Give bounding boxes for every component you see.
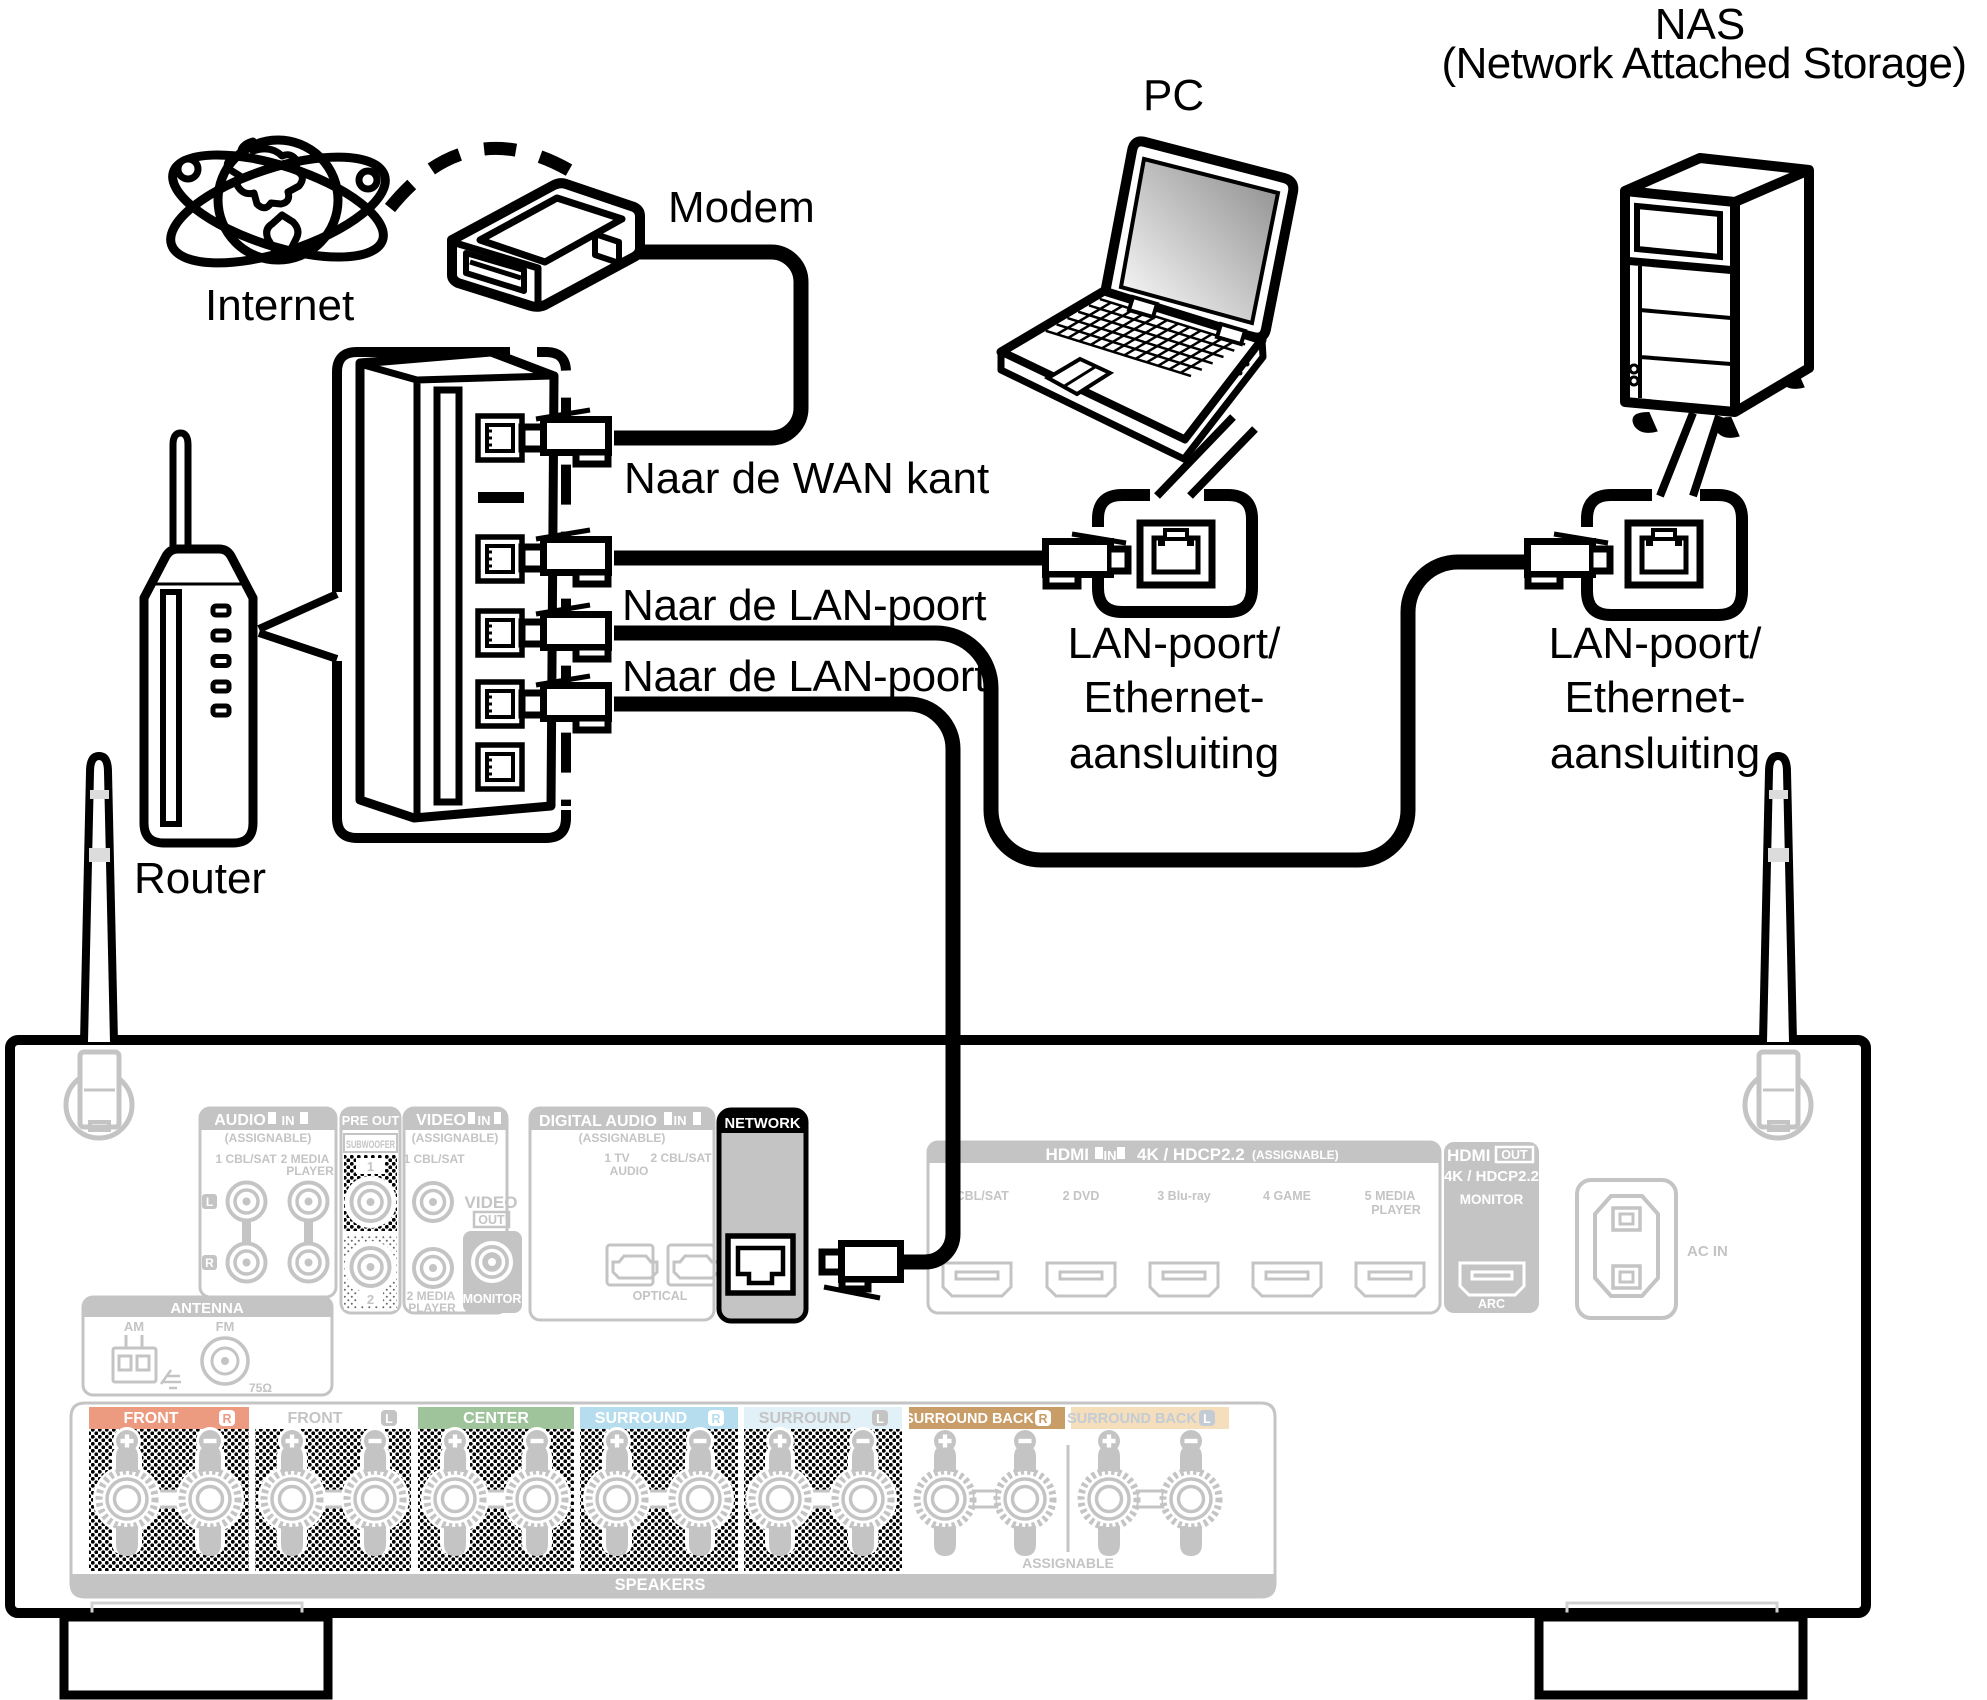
- svg-text:VIDEO: VIDEO: [416, 1112, 466, 1129]
- svg-text:SUBWOOFER: SUBWOOFER: [346, 1139, 395, 1151]
- svg-text:R: R: [205, 1256, 214, 1270]
- svg-text:(ASSIGNABLE): (ASSIGNABLE): [412, 1131, 499, 1145]
- svg-text:Naar de LAN-poort: Naar de LAN-poort: [622, 652, 986, 701]
- svg-text:DIGITAL AUDIO: DIGITAL AUDIO: [539, 1113, 657, 1130]
- svg-text:PC: PC: [1143, 71, 1204, 120]
- svg-text:Ethernet-: Ethernet-: [1084, 673, 1265, 722]
- svg-text:1 CBL/SAT: 1 CBL/SAT: [215, 1152, 277, 1166]
- svg-text:L: L: [1203, 1412, 1211, 1426]
- svg-text:ANTENNA: ANTENNA: [170, 1300, 243, 1317]
- svg-text:4 GAME: 4 GAME: [1263, 1189, 1311, 1203]
- svg-text:R: R: [1038, 1412, 1047, 1426]
- svg-text:3 Blu-ray: 3 Blu-ray: [1157, 1189, 1211, 1203]
- svg-text:PRE OUT: PRE OUT: [342, 1113, 400, 1128]
- svg-text:1 TV: 1 TV: [604, 1151, 629, 1165]
- svg-text:Modem: Modem: [668, 183, 815, 232]
- svg-text:aansluiting: aansluiting: [1550, 729, 1760, 778]
- svg-text:5 MEDIA: 5 MEDIA: [1365, 1189, 1416, 1203]
- svg-text:OUT: OUT: [478, 1213, 505, 1227]
- svg-text:OPTICAL: OPTICAL: [633, 1289, 688, 1303]
- svg-text:IN: IN: [1104, 1148, 1117, 1163]
- svg-text:Internet: Internet: [205, 281, 354, 330]
- svg-text:PLAYER: PLAYER: [1371, 1203, 1421, 1217]
- svg-text:L: L: [876, 1412, 884, 1426]
- svg-text:SURROUND BACK: SURROUND BACK: [904, 1411, 1034, 1427]
- svg-text:4K / HDCP2.2: 4K / HDCP2.2: [1137, 1145, 1245, 1164]
- svg-text:aansluiting: aansluiting: [1069, 729, 1279, 778]
- svg-text:PLAYER: PLAYER: [286, 1164, 334, 1178]
- svg-text:SURROUND: SURROUND: [759, 1410, 851, 1427]
- svg-text:SURROUND BACK: SURROUND BACK: [1067, 1411, 1197, 1427]
- svg-text:R: R: [711, 1412, 720, 1426]
- svg-text:MONITOR: MONITOR: [1460, 1192, 1524, 1207]
- svg-text:4K / HDCP2.2: 4K / HDCP2.2: [1444, 1168, 1539, 1185]
- svg-text:PLAYER: PLAYER: [408, 1301, 456, 1315]
- svg-text:1: 1: [367, 1159, 374, 1174]
- svg-text:FRONT: FRONT: [287, 1410, 342, 1427]
- svg-text:75Ω: 75Ω: [249, 1381, 272, 1395]
- svg-text:2 DVD: 2 DVD: [1063, 1189, 1100, 1203]
- svg-text:Ethernet-: Ethernet-: [1565, 673, 1746, 722]
- svg-text:AC IN: AC IN: [1687, 1243, 1728, 1260]
- svg-text:SURROUND: SURROUND: [595, 1410, 687, 1427]
- svg-text:LAN-poort/: LAN-poort/: [1549, 619, 1763, 668]
- svg-text:Naar de LAN-poort: Naar de LAN-poort: [622, 581, 986, 630]
- svg-text:R: R: [222, 1412, 231, 1426]
- svg-text:Router: Router: [134, 854, 266, 903]
- svg-text:2: 2: [367, 1292, 374, 1307]
- svg-text:(ASSIGNABLE): (ASSIGNABLE): [1252, 1148, 1339, 1162]
- svg-text:AUDIO: AUDIO: [610, 1164, 649, 1178]
- svg-text:NETWORK: NETWORK: [725, 1115, 801, 1132]
- svg-text:CENTER: CENTER: [463, 1410, 529, 1427]
- svg-text:ASSIGNABLE: ASSIGNABLE: [1022, 1555, 1114, 1571]
- svg-text:(ASSIGNABLE): (ASSIGNABLE): [579, 1131, 666, 1145]
- svg-text:HDMI: HDMI: [1046, 1145, 1089, 1164]
- svg-text:IN: IN: [282, 1113, 295, 1128]
- svg-text:FRONT: FRONT: [123, 1410, 178, 1427]
- svg-text:LAN-poort/: LAN-poort/: [1068, 619, 1282, 668]
- svg-text:IN: IN: [478, 1113, 491, 1128]
- svg-text:AUDIO: AUDIO: [214, 1112, 266, 1129]
- svg-text:VIDEO: VIDEO: [465, 1193, 518, 1212]
- svg-text:SPEAKERS: SPEAKERS: [615, 1576, 706, 1594]
- svg-text:(Network Attached Storage): (Network Attached Storage): [1442, 39, 1967, 88]
- svg-text:AM: AM: [124, 1319, 144, 1334]
- svg-text:(ASSIGNABLE): (ASSIGNABLE): [225, 1131, 312, 1145]
- svg-text:ARC: ARC: [1478, 1297, 1505, 1311]
- svg-text:FM: FM: [216, 1319, 235, 1334]
- svg-text:1 CBL/SAT: 1 CBL/SAT: [403, 1152, 465, 1166]
- svg-text:HDMI: HDMI: [1447, 1146, 1490, 1165]
- svg-text:L: L: [385, 1412, 393, 1426]
- svg-text:MONITOR: MONITOR: [463, 1292, 522, 1306]
- svg-text:Naar de WAN kant: Naar de WAN kant: [624, 454, 989, 503]
- svg-text:2 CBL/SAT: 2 CBL/SAT: [650, 1151, 712, 1165]
- svg-text:IN: IN: [674, 1113, 687, 1128]
- svg-text:L: L: [206, 1195, 213, 1209]
- svg-text:OUT: OUT: [1501, 1148, 1528, 1162]
